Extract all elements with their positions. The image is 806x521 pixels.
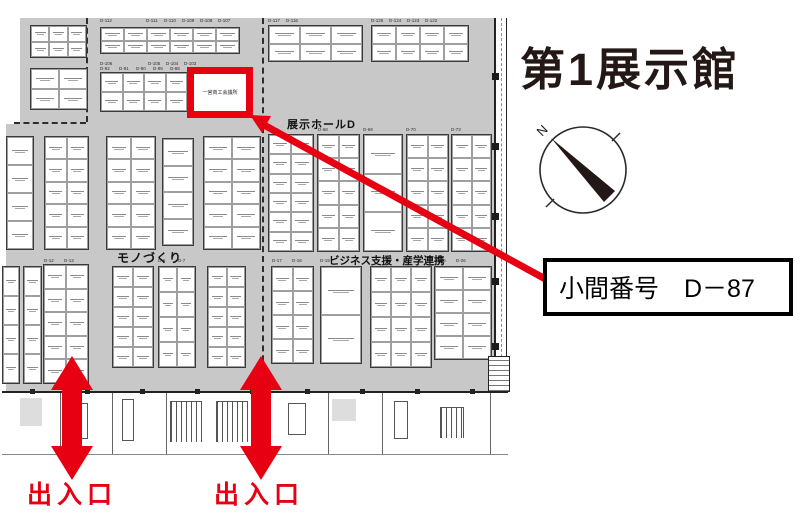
booth-cell <box>272 339 293 363</box>
lot-number: D-67 <box>268 128 278 133</box>
booth-cell <box>269 232 291 251</box>
booth-cell <box>232 159 260 181</box>
toilet-stalls <box>440 407 464 438</box>
partition-wall <box>382 393 383 454</box>
booth-cell <box>411 342 431 367</box>
booth-cell <box>291 174 313 193</box>
booth-cell <box>113 347 133 367</box>
booth-block <box>451 134 492 252</box>
booth-cell <box>339 135 360 158</box>
booth-cell <box>166 73 188 92</box>
partition-wall <box>490 393 491 454</box>
booth-cell <box>67 159 89 181</box>
booth-cell <box>391 267 411 292</box>
booth-cell <box>204 159 232 181</box>
booth-cell <box>159 292 177 317</box>
booth-cell <box>339 181 360 204</box>
booth-cell <box>204 182 232 204</box>
booth-cell <box>3 267 19 296</box>
booth-cell <box>232 182 260 204</box>
entrance-label-left: 出入口 <box>27 475 117 511</box>
booth-cell <box>269 174 291 193</box>
booth-cell <box>67 137 89 159</box>
booth-cell <box>407 228 428 251</box>
booth-number-callout: 小間番号 D－87 <box>543 258 793 316</box>
aisle-label-hall-d: 展示ホールD <box>287 116 356 132</box>
booth-cell <box>269 212 291 231</box>
booth-cell <box>163 192 193 219</box>
booth-cell <box>45 137 67 159</box>
booth-cell <box>391 292 411 317</box>
booth-cell <box>318 228 339 251</box>
booth-cell <box>435 313 463 336</box>
highlighted-booth-name: 一宮商工会議所 <box>202 89 237 96</box>
booth-cell <box>435 336 463 359</box>
booth-cell <box>232 204 260 226</box>
booth-cell <box>372 26 396 44</box>
booth-cell <box>159 342 177 367</box>
booth-cell <box>411 317 431 342</box>
booth-cell <box>321 267 361 315</box>
booth-cell <box>407 158 428 181</box>
booth-cell <box>300 26 331 44</box>
booth-cell <box>407 135 428 158</box>
booth-cell <box>463 313 491 336</box>
booth-cell <box>166 92 188 111</box>
booth-cell <box>107 182 131 204</box>
booth-cell <box>59 89 87 109</box>
booth-cell <box>204 204 232 226</box>
booth-cell <box>24 296 41 325</box>
booth-cell <box>107 137 131 159</box>
booth-cell <box>133 307 153 327</box>
lot-number: D-107 <box>218 19 230 24</box>
booth-cell <box>204 227 232 249</box>
booth-cell <box>452 158 472 181</box>
booth-cell <box>339 228 360 251</box>
lot-number: D-90 <box>136 67 146 72</box>
column-mark <box>85 389 90 394</box>
booth-cell <box>31 42 49 58</box>
booth-cell <box>227 347 246 367</box>
column-mark <box>30 389 35 394</box>
partition-wall <box>328 393 329 454</box>
lot-number: D-110 <box>164 19 176 24</box>
booth-cell <box>45 204 67 226</box>
booth-cell <box>68 26 86 42</box>
booth-cell <box>463 336 491 359</box>
booth-cell <box>101 92 123 111</box>
booth-cell <box>272 267 293 291</box>
booth-block <box>370 266 432 368</box>
booth-cell <box>49 42 67 58</box>
booth-cell <box>444 26 468 44</box>
compass-tick <box>612 133 620 141</box>
toilet-stalls <box>216 401 248 442</box>
booth-cell <box>49 26 67 42</box>
partition-wall <box>166 393 167 454</box>
booth-cell <box>321 315 361 363</box>
hall-boundary-dashed <box>14 122 86 124</box>
booth-cell <box>144 73 166 92</box>
booth-cell <box>435 290 463 313</box>
booth-cell <box>208 347 227 367</box>
booth-block <box>23 266 42 384</box>
lot-number: D-122 <box>425 19 437 24</box>
booth-cell <box>208 267 227 287</box>
booth-cell <box>472 205 492 228</box>
lot-number: D-111 <box>146 19 158 24</box>
booth-block <box>363 134 403 252</box>
booth-cell <box>428 158 449 181</box>
booth-cell <box>193 28 216 41</box>
compass-north-label: N <box>534 122 551 139</box>
booth-cell <box>163 219 193 246</box>
booth-cell <box>3 296 19 325</box>
lot-number: D-26 <box>456 259 466 264</box>
lot-number: D-117 <box>268 19 280 24</box>
lot-number: D-92 <box>100 67 110 72</box>
lot-number: D-108 <box>200 19 212 24</box>
booth-cell <box>44 359 66 383</box>
booth-cell <box>364 135 402 174</box>
booth-cell <box>291 232 313 251</box>
lot-number: D-109 <box>182 19 194 24</box>
lot-number: D-73 <box>451 128 461 133</box>
booth-cell <box>300 44 331 62</box>
booth-cell <box>159 317 177 342</box>
column-mark <box>470 389 475 394</box>
booth-cell <box>371 267 391 292</box>
booth-cell <box>7 165 33 193</box>
booth-block <box>162 138 194 246</box>
booth-cell <box>66 359 88 383</box>
booth-cell <box>124 28 147 41</box>
booth-cell <box>59 69 87 89</box>
wall-column <box>492 278 499 285</box>
booth-cell <box>124 41 147 54</box>
lot-number: D-70 <box>406 128 416 133</box>
booth-block <box>268 25 363 62</box>
partition-wall <box>112 393 113 454</box>
booth-cell <box>291 154 313 173</box>
booth-cell <box>113 287 133 307</box>
booth-cell <box>107 159 131 181</box>
aisle-label-monozukuri: モノづくり <box>117 249 182 266</box>
booth-cell <box>44 289 66 313</box>
page: D-112D-111D-110D-109D-108D-107D-117D-116… <box>0 0 806 521</box>
booth-cell <box>411 292 431 317</box>
booth-cell <box>371 342 391 367</box>
service-room <box>72 403 88 439</box>
booth-cell <box>420 44 444 62</box>
booth-cell <box>411 267 431 292</box>
booth-highlight-box: 一宮商工会議所 <box>187 67 253 118</box>
booth-cell <box>101 28 124 41</box>
service-room <box>288 403 306 435</box>
booth-cell <box>131 159 155 181</box>
column-mark <box>195 389 200 394</box>
compass: N <box>528 115 638 225</box>
booth-cell <box>107 204 131 226</box>
booth-cell <box>232 137 260 159</box>
booth-cell <box>31 89 59 109</box>
booth-cell <box>66 336 88 360</box>
wall-service-room <box>488 356 510 392</box>
booth-cell <box>396 26 420 44</box>
booth-cell <box>131 182 155 204</box>
booth-cell <box>452 205 472 228</box>
booth-cell <box>435 267 463 290</box>
lot-number: D-69 <box>363 128 373 133</box>
hall-boundary-dashed <box>262 18 264 391</box>
booth-cell <box>24 325 41 354</box>
booth-cell <box>208 307 227 327</box>
booth-cell <box>170 41 193 54</box>
booth-block <box>406 134 449 252</box>
booth-cell <box>391 317 411 342</box>
booth-cell <box>364 174 402 213</box>
booth-cell <box>133 287 153 307</box>
booth-cell <box>177 267 195 292</box>
booth-cell <box>428 228 449 251</box>
partition-wall <box>60 393 61 454</box>
booth-cell <box>133 327 153 347</box>
lot-number: D-88 <box>170 67 180 72</box>
booth-cell <box>208 287 227 307</box>
booth-cell <box>293 291 314 315</box>
compass-tick <box>546 199 554 207</box>
booth-cell <box>269 44 300 62</box>
booth-cell <box>420 26 444 44</box>
booth-cell <box>66 289 88 313</box>
booth-cell <box>291 212 313 231</box>
booth-block <box>112 266 154 368</box>
booth-cell <box>170 28 193 41</box>
booth-block <box>203 136 261 250</box>
booth-cell <box>7 137 33 165</box>
booth-cell <box>45 182 67 204</box>
booth-cell <box>24 267 41 296</box>
booth-cell <box>272 315 293 339</box>
booth-cell <box>67 204 89 226</box>
lot-number: D-13 <box>64 259 74 264</box>
booth-cell <box>472 135 492 158</box>
booth-cell <box>396 44 420 62</box>
booth-block <box>371 25 469 62</box>
lot-number: D-89 <box>153 67 163 72</box>
booth-cell <box>31 26 49 42</box>
column-mark <box>360 389 365 394</box>
wall-column <box>492 213 499 220</box>
booth-cell <box>227 287 246 307</box>
booth-cell <box>291 135 313 154</box>
booth-cell <box>66 265 88 289</box>
booth-cell <box>68 42 86 58</box>
booth-cell <box>144 92 166 111</box>
page-title: 第1展示館 <box>520 33 740 98</box>
booth-cell <box>177 342 195 367</box>
booth-cell <box>269 135 291 154</box>
booth-cell <box>147 28 170 41</box>
booth-cell <box>193 41 216 54</box>
booth-cell <box>123 92 145 111</box>
aisle-label-business: ビジネス支援・産学連携 <box>329 253 445 268</box>
lot-number: D-112 <box>100 19 112 24</box>
booth-cell <box>45 159 67 181</box>
booth-cell <box>364 212 402 251</box>
booth-block <box>317 134 360 252</box>
booth-cell <box>428 181 449 204</box>
booth-cell <box>472 228 492 251</box>
booth-cell <box>472 181 492 204</box>
booth-cell <box>272 291 293 315</box>
booth-cell <box>7 221 33 249</box>
booth-cell <box>227 327 246 347</box>
booth-cell <box>269 154 291 173</box>
booth-cell <box>407 205 428 228</box>
lot-number: D-123 <box>407 19 419 24</box>
booth-cell <box>463 290 491 313</box>
booth-cell <box>444 44 468 62</box>
booth-cell <box>3 325 19 354</box>
partition-wall <box>254 393 255 454</box>
booth-cell <box>269 193 291 212</box>
booth-cell <box>113 327 133 347</box>
booth-cell <box>452 228 472 251</box>
booth-block <box>6 136 34 250</box>
entrance-label-right: 出入口 <box>214 475 304 511</box>
booth-cell <box>163 166 193 193</box>
room-shading <box>332 399 356 421</box>
booth-cell <box>391 342 411 367</box>
booth-block <box>43 264 89 384</box>
booth-cell <box>208 327 227 347</box>
wall-column <box>492 343 499 350</box>
lot-number: D-12 <box>44 259 54 264</box>
booth-cell <box>291 193 313 212</box>
booth-cell <box>331 44 362 62</box>
booth-cell <box>44 336 66 360</box>
booth-cell <box>113 307 133 327</box>
booth-cell <box>31 69 59 89</box>
booth-cell <box>147 41 170 54</box>
lot-number: D-124 <box>389 19 401 24</box>
booth-block <box>2 266 20 384</box>
booth-cell <box>232 227 260 249</box>
booth-cell <box>101 73 123 92</box>
booth-cell <box>293 315 314 339</box>
compass-needle-icon <box>551 138 615 202</box>
booth-cell <box>163 139 193 166</box>
lot-number: D-17 <box>272 259 282 264</box>
booth-cell <box>101 41 124 54</box>
booth-cell <box>67 182 89 204</box>
toilet-stalls <box>170 401 202 442</box>
booth-cell <box>131 204 155 226</box>
booth-block <box>268 134 314 252</box>
wall-column <box>492 73 499 80</box>
booth-cell <box>131 137 155 159</box>
booth-cell <box>371 317 391 342</box>
booth-cell <box>428 135 449 158</box>
booth-block <box>434 266 492 360</box>
building-section <box>2 391 508 455</box>
booth-cell <box>177 292 195 317</box>
booth-block <box>158 266 196 368</box>
lot-number: D-91 <box>119 67 129 72</box>
booth-block <box>320 266 362 364</box>
booth-cell <box>371 292 391 317</box>
room-shading <box>20 398 42 426</box>
booth-cell <box>452 181 472 204</box>
service-room <box>394 401 408 439</box>
booth-cell <box>318 181 339 204</box>
lot-number: D-103 <box>184 62 196 67</box>
booth-cell <box>3 354 19 383</box>
column-mark <box>415 389 420 394</box>
booth-cell <box>123 73 145 92</box>
booth-cell <box>216 28 239 41</box>
column-mark <box>305 389 310 394</box>
wall-column <box>492 143 499 150</box>
booth-cell <box>318 135 339 158</box>
booth-cell <box>339 158 360 181</box>
lot-number: D-18 <box>292 259 302 264</box>
lot-number: D-116 <box>286 19 298 24</box>
booth-cell <box>7 193 33 221</box>
booth-cell <box>452 135 472 158</box>
booth-cell <box>407 181 428 204</box>
booth-block <box>271 266 314 364</box>
booth-cell <box>45 227 67 249</box>
booth-cell <box>227 307 246 327</box>
booth-block <box>30 25 87 58</box>
booth-cell <box>293 339 314 363</box>
booth-cell <box>463 267 491 290</box>
column-mark <box>140 389 145 394</box>
floor-corner-cutout <box>6 18 20 124</box>
booth-cell <box>177 317 195 342</box>
booth-cell <box>216 41 239 54</box>
booth-block <box>207 266 246 368</box>
service-room <box>122 399 134 441</box>
booth-cell <box>131 227 155 249</box>
booth-cell <box>44 265 66 289</box>
booth-cell <box>227 267 246 287</box>
booth-cell <box>318 158 339 181</box>
booth-block <box>30 68 88 110</box>
booth-block <box>106 136 156 250</box>
booth-cell <box>204 137 232 159</box>
booth-cell <box>66 312 88 336</box>
booth-block <box>100 72 188 112</box>
booth-cell <box>269 26 300 44</box>
booth-cell <box>67 227 89 249</box>
booth-cell <box>428 205 449 228</box>
booth-cell <box>318 205 339 228</box>
booth-cell <box>472 158 492 181</box>
booth-cell <box>133 267 153 287</box>
booth-cell <box>339 205 360 228</box>
booth-cell <box>44 312 66 336</box>
lot-number: D-125 <box>371 19 383 24</box>
booth-cell <box>107 227 131 249</box>
booth-block <box>44 136 89 250</box>
booth-cell <box>372 44 396 62</box>
booth-block <box>100 27 240 54</box>
booth-cell <box>331 26 362 44</box>
